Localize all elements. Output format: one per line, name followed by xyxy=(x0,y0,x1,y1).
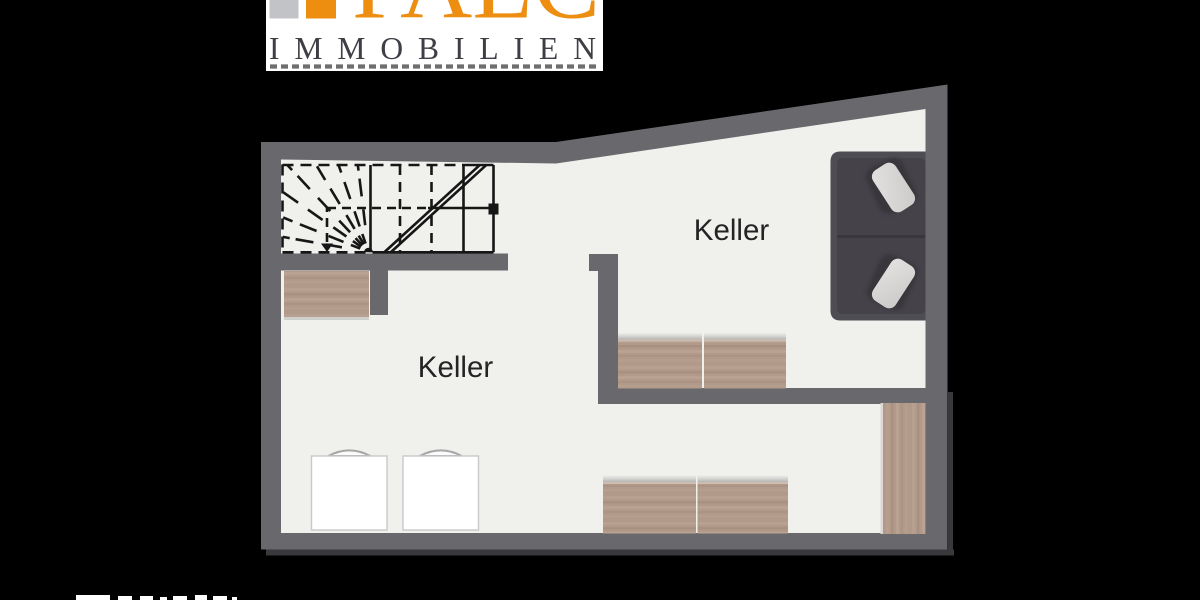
svg-text:IMMOBILIEN: IMMOBILIEN xyxy=(269,31,596,66)
svg-text:Keller: Keller xyxy=(694,214,770,247)
svg-text:Keller: Keller xyxy=(418,351,494,384)
